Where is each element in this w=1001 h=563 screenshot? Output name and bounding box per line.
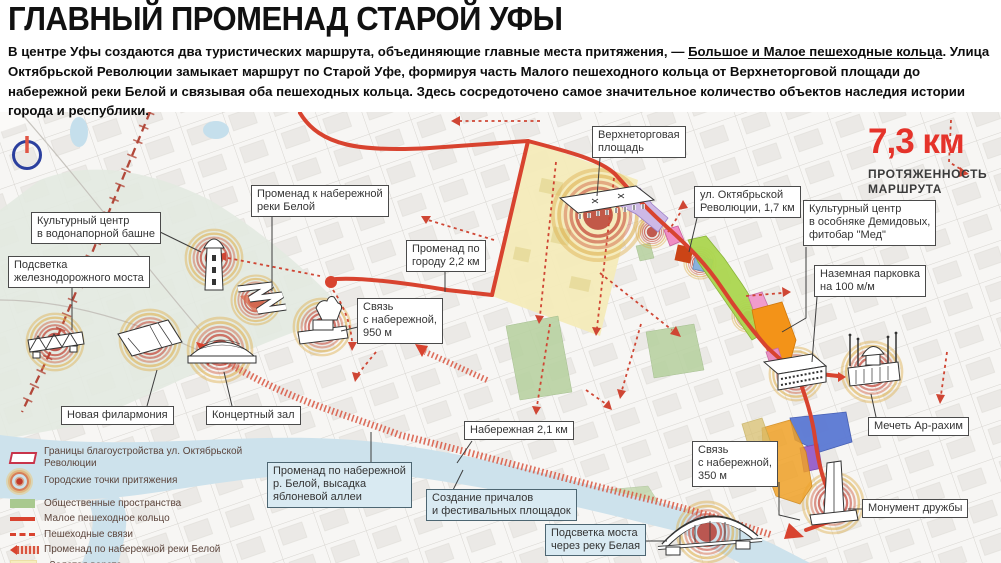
promenade-arrow-icon <box>10 545 17 555</box>
route-length-stat: 7,3 км ПРОТЯЖЕННОСТЬ МАРШРУТА <box>868 124 998 197</box>
label-ar-rahim-mosque: Мечеть Ар-рахим <box>868 417 969 436</box>
header: ГЛАВНЫЙ ПРОМЕНАД СТАРОЙ УФЫ В центре Уфы… <box>0 0 1001 112</box>
dashed-line-swatch-icon <box>10 533 35 536</box>
intro-paragraph: В центре Уфы создаются два туристических… <box>8 42 992 121</box>
legend-item-embankment-promenade: Променад по набережной реки Белой <box>10 544 280 556</box>
legend-item-pedestrian-links: Пешеходные связи <box>10 529 280 541</box>
legend-item-golden-verst: «Золотая верста» <box>10 560 280 563</box>
pond <box>203 121 229 139</box>
intro-text-1: В центре Уфы создаются два туристических… <box>8 44 688 59</box>
route-length-caption: ПРОТЯЖЕННОСТЬ МАРШРУТА <box>868 167 998 197</box>
label-piers-festival: Создание причалов и фестивальных площадо… <box>426 489 577 521</box>
pond <box>70 117 88 147</box>
legend-item-public-spaces: Общественные пространства <box>10 498 280 510</box>
map-legend: Границы благоустройства ул. Октябрьской … <box>10 446 280 563</box>
label-city-promenade: Променад по городу 2,2 км <box>406 240 486 272</box>
label-link-350m: Связь с набережной, 350 м <box>692 441 778 487</box>
legend-item-boundary: Границы благоустройства ул. Октябрьской … <box>10 446 280 470</box>
label-ground-parking: Наземная парковка на 100 м/м <box>814 265 926 297</box>
legend-item-attraction: Городские точки притяжения <box>10 474 280 489</box>
label-new-philharmonic: Новая филармония <box>61 406 174 425</box>
red-line-swatch-icon <box>10 517 35 522</box>
label-oktyabrskoy-revolucii: ул. Октябрьской Революции, 1,7 км <box>694 186 801 218</box>
label-friendship-monument: Монумент дружбы <box>862 499 968 518</box>
label-promenade-to-embankment: Променад к набережной реки Белой <box>251 185 389 217</box>
label-verkhnetorgovaya: Верхнеторговая площадь <box>592 126 686 158</box>
label-bridge-lighting: Подсветка моста через реку Белая <box>545 524 646 556</box>
legend-item-small-ring: Малое пешеходное кольцо <box>10 513 280 525</box>
label-demidov-mansion: Культурный центр в особняке Демидовых, ф… <box>803 200 936 246</box>
green-swatch-icon <box>10 499 35 508</box>
label-concert-hall: Концертный зал <box>206 406 301 425</box>
label-apple-alley: Променад по набережной р. Белой, высадка… <box>267 462 412 508</box>
label-embankment-2-1km: Набережная 2,1 км <box>464 421 574 440</box>
water-tower-icon <box>204 239 224 290</box>
boundary-swatch-icon <box>9 452 38 464</box>
attraction-swatch-icon <box>12 474 27 489</box>
page-title: ГЛАВНЫЙ ПРОМЕНАД СТАРОЙ УФЫ <box>8 0 562 39</box>
infographic-page: ГЛАВНЫЙ ПРОМЕНАД СТАРОЙ УФЫ В центре Уфы… <box>0 0 1001 563</box>
route-node <box>325 276 337 288</box>
label-link-950m: Связь с набережной, 950 м <box>357 298 443 344</box>
label-water-tower-center: Культурный центр в водонапорной башне <box>31 212 161 244</box>
route-length-value: 7,3 км <box>868 124 998 159</box>
hatched-swatch-icon <box>17 546 39 554</box>
label-rail-bridge-lighting: Подсветка железнодорожного моста <box>8 256 150 288</box>
intro-underlined-phrase: Большое и Малое пешеходные кольца <box>688 44 942 59</box>
